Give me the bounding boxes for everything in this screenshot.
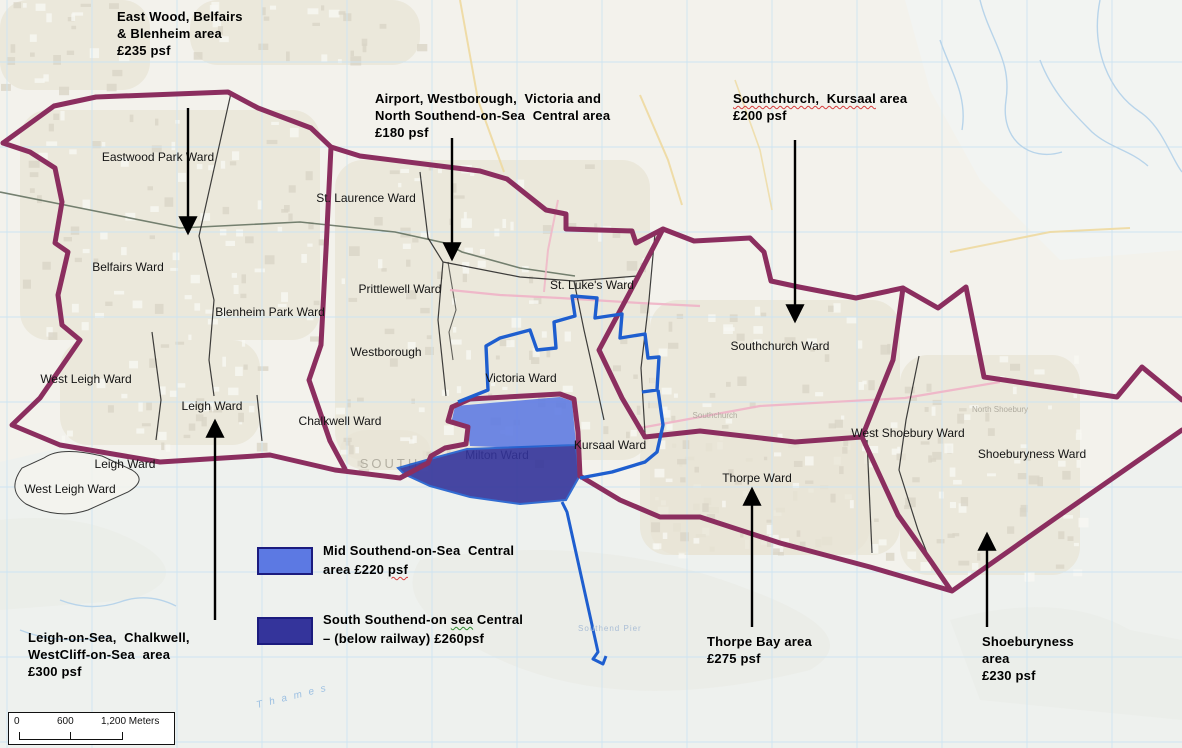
urban-block	[142, 423, 151, 426]
urban-block	[1074, 543, 1079, 546]
urban-block	[1034, 369, 1044, 374]
urban-block	[1025, 573, 1031, 582]
ward-label: Westborough	[350, 345, 421, 359]
urban-block	[301, 254, 307, 263]
urban-block	[281, 292, 288, 302]
urban-block	[53, 114, 59, 120]
urban-block	[805, 481, 813, 484]
urban-block	[355, 447, 359, 453]
urban-block	[496, 356, 500, 360]
ward-label: Southchurch Ward	[731, 339, 830, 353]
ward-label: West Leigh Ward	[24, 482, 115, 496]
urban-block	[290, 128, 299, 138]
urban-block	[543, 225, 552, 234]
urban-block	[264, 17, 270, 21]
urban-block	[308, 8, 319, 14]
urban-block	[222, 357, 226, 367]
urban-block	[563, 386, 573, 392]
urban-block	[109, 3, 119, 9]
urban-block	[129, 361, 138, 369]
urban-block	[444, 425, 454, 435]
urban-block	[453, 327, 456, 333]
urban-block	[454, 195, 465, 198]
urban-block	[835, 420, 843, 428]
urban-block	[1018, 473, 1027, 479]
urban-block	[232, 151, 239, 160]
urban-block	[726, 382, 731, 387]
urban-block	[1076, 430, 1081, 435]
urban-block	[67, 51, 74, 55]
urban-block	[36, 4, 46, 11]
urban-block	[390, 358, 398, 366]
urban-block	[271, 122, 279, 125]
urban-block	[887, 344, 890, 353]
urban-block	[659, 349, 668, 357]
urban-block	[858, 340, 862, 348]
urban-block	[977, 553, 980, 561]
urban-block	[666, 479, 673, 483]
urban-block	[81, 4, 91, 7]
urban-block	[841, 416, 844, 420]
urban-block	[425, 347, 434, 355]
urban-block	[344, 438, 352, 442]
urban-block	[178, 383, 186, 387]
ward-label: Leigh Ward	[95, 457, 156, 471]
urban-block	[944, 444, 953, 454]
urban-block	[173, 253, 180, 261]
urban-block	[466, 350, 471, 359]
urban-block	[774, 452, 781, 456]
urban-block	[349, 298, 358, 302]
urban-block	[939, 492, 944, 499]
urban-block	[722, 501, 726, 508]
urban-block	[886, 553, 895, 561]
urban-block	[200, 213, 210, 221]
urban-block	[183, 218, 187, 225]
urban-block	[842, 447, 847, 454]
urban-block	[175, 120, 179, 124]
urban-block	[357, 398, 364, 403]
urban-block	[874, 519, 879, 523]
urban-block	[950, 468, 956, 477]
urban-block	[202, 417, 207, 427]
urban-block	[461, 218, 472, 228]
urban-block	[194, 303, 200, 311]
urban-block	[374, 217, 383, 226]
urban-block	[351, 51, 355, 57]
urban-block	[235, 367, 243, 376]
urban-block	[136, 428, 144, 433]
urban-block	[170, 391, 177, 397]
urban-block	[510, 222, 513, 231]
urban-block	[338, 59, 342, 63]
urban-block	[378, 259, 382, 268]
ward-label: Kursaal Ward	[574, 438, 646, 452]
urban-block	[286, 52, 290, 62]
urban-block	[265, 255, 275, 264]
urban-block	[155, 119, 158, 126]
urban-block	[669, 322, 673, 332]
urban-block	[794, 461, 803, 467]
urban-block	[933, 400, 942, 405]
urban-block	[165, 197, 174, 206]
urban-block	[959, 408, 967, 411]
urban-block	[11, 44, 16, 53]
urban-block	[1058, 461, 1066, 467]
urban-block	[1062, 471, 1070, 480]
urban-block	[123, 52, 127, 56]
urban-block	[1074, 394, 1078, 398]
urban-block	[71, 26, 76, 29]
urban-block	[451, 340, 462, 345]
urban-block	[677, 314, 683, 319]
ward-label: St. Luke's Ward	[550, 278, 634, 292]
urban-block	[710, 393, 716, 398]
urban-block	[506, 340, 514, 347]
urban-block	[43, 74, 48, 81]
urban-block	[480, 249, 485, 255]
urban-block	[349, 246, 360, 256]
urban-block	[631, 430, 637, 437]
urban-block	[1056, 565, 1064, 569]
urban-block	[185, 295, 192, 299]
urban-block	[64, 237, 72, 241]
ward-label: Chalkwell Ward	[299, 414, 382, 428]
urban-block	[30, 188, 35, 193]
urban-block	[258, 44, 268, 50]
urban-block	[1020, 508, 1027, 517]
urban-block	[23, 3, 27, 8]
urban-block	[312, 23, 320, 26]
urban-block	[82, 322, 89, 330]
urban-block	[679, 553, 685, 558]
urban-block	[400, 228, 410, 238]
urban-block	[512, 318, 522, 328]
urban-block	[232, 273, 237, 278]
urban-area	[190, 0, 420, 65]
urban-block	[350, 56, 361, 65]
urban-block	[121, 394, 127, 399]
urban-block	[542, 331, 547, 337]
place-label: Southchurch	[693, 411, 738, 420]
urban-block	[158, 432, 166, 440]
price-map: Milton WardSOUTHSouthchurchNorth Shoebur…	[0, 0, 1182, 748]
urban-block	[773, 548, 780, 555]
urban-block	[223, 207, 230, 214]
urban-block	[72, 304, 79, 313]
urban-block	[1, 84, 11, 91]
urban-block	[683, 440, 690, 449]
urban-block	[1000, 356, 1009, 362]
urban-block	[48, 332, 57, 340]
urban-block	[694, 538, 700, 544]
urban-block	[238, 413, 244, 422]
urban-block	[244, 365, 248, 370]
ward-label: West Leigh Ward	[40, 372, 131, 386]
ward-label: Blenheim Park Ward	[215, 305, 325, 319]
urban-block	[502, 387, 507, 390]
urban-block	[219, 36, 229, 42]
urban-block	[342, 278, 345, 284]
urban-block	[191, 275, 200, 284]
urban-block	[35, 78, 45, 83]
base-map-svg: Milton WardSOUTHSouthchurchNorth Shoebur…	[0, 0, 1182, 748]
urban-block	[831, 494, 836, 503]
urban-block	[680, 477, 685, 482]
urban-block	[958, 561, 969, 566]
urban-block	[1058, 531, 1064, 539]
urban-block	[23, 280, 31, 289]
urban-block	[662, 388, 672, 395]
ward-label: Leigh Ward	[182, 399, 243, 413]
urban-block	[839, 466, 844, 474]
urban-block	[230, 161, 236, 165]
urban-block	[828, 306, 834, 312]
urban-block	[961, 497, 968, 506]
urban-block	[138, 402, 142, 412]
urban-block	[242, 274, 247, 283]
urban-block	[30, 34, 37, 42]
ward-label: Thorpe Ward	[722, 471, 792, 485]
urban-block	[907, 552, 916, 560]
urban-block	[420, 308, 429, 313]
urban-block	[730, 314, 738, 322]
urban-block	[1010, 364, 1020, 371]
place-label: North Shoebury	[972, 405, 1028, 414]
urban-block	[114, 291, 124, 295]
urban-block	[417, 44, 427, 51]
urban-block	[339, 11, 346, 15]
urban-block	[668, 343, 678, 349]
urban-block	[565, 332, 571, 342]
urban-block	[400, 437, 410, 441]
urban-block	[859, 382, 864, 390]
urban-block	[988, 428, 995, 436]
urban-block	[1068, 536, 1074, 541]
urban-block	[613, 365, 621, 371]
urban-block	[258, 200, 262, 209]
urban-block	[627, 261, 638, 271]
urban-block	[184, 435, 191, 438]
urban-block	[307, 244, 312, 247]
urban-block	[240, 294, 246, 298]
urban-block	[753, 326, 762, 334]
urban-block	[310, 336, 319, 341]
urban-block	[150, 235, 155, 239]
urban-block	[708, 314, 715, 322]
urban-block	[598, 233, 602, 242]
urban-block	[49, 124, 54, 132]
urban-block	[952, 533, 959, 536]
urban-block	[703, 403, 712, 407]
urban-block	[1013, 387, 1017, 395]
urban-block	[46, 13, 52, 22]
urban-block	[218, 26, 223, 35]
urban-block	[1048, 406, 1052, 410]
urban-block	[105, 302, 112, 306]
urban-block	[805, 456, 814, 465]
urban-block	[107, 84, 117, 92]
urban-block	[953, 480, 962, 485]
urban-block	[1076, 433, 1082, 440]
urban-block	[1073, 569, 1082, 576]
ward-label: Eastwood Park Ward	[102, 150, 214, 164]
urban-block	[72, 12, 83, 15]
urban-block	[178, 173, 186, 182]
urban-block	[651, 522, 660, 532]
urban-block	[221, 161, 225, 169]
urban-block	[83, 249, 90, 253]
urban-block	[677, 459, 686, 465]
urban-block	[633, 375, 638, 379]
ward-label: Prittlewell Ward	[359, 282, 442, 296]
urban-block	[674, 394, 678, 398]
urban-block	[671, 416, 675, 421]
urban-block	[680, 532, 689, 541]
urban-block	[75, 258, 82, 262]
urban-block	[400, 169, 409, 173]
urban-block	[133, 301, 143, 309]
urban-block	[194, 52, 203, 60]
urban-block	[905, 387, 915, 394]
urban-block	[547, 350, 551, 357]
urban-block	[1007, 526, 1014, 533]
urban-block	[937, 539, 945, 543]
urban-block	[494, 229, 499, 237]
urban-block	[1029, 476, 1040, 485]
urban-block	[211, 2, 219, 12]
urban-block	[931, 458, 937, 462]
urban-block	[987, 473, 996, 476]
urban-block	[349, 445, 354, 454]
urban-block	[146, 403, 152, 411]
ward-label: Shoeburyness Ward	[978, 447, 1086, 461]
urban-block	[833, 303, 840, 312]
urban-block	[62, 436, 65, 443]
urban-block	[802, 385, 809, 394]
urban-block	[912, 477, 919, 482]
urban-block	[148, 186, 154, 190]
urban-block	[398, 183, 401, 187]
urban-block	[529, 276, 533, 283]
urban-block	[161, 344, 169, 348]
urban-block	[655, 469, 665, 478]
urban-block	[166, 445, 170, 452]
urban-block	[236, 229, 243, 236]
urban-block	[925, 407, 929, 412]
urban-block	[67, 431, 73, 437]
urban-block	[60, 111, 64, 121]
urban-block	[381, 268, 386, 272]
urban-block	[69, 149, 77, 154]
urban-block	[306, 171, 313, 180]
urban-block	[737, 377, 746, 387]
urban-block	[267, 140, 278, 144]
urban-block	[412, 238, 418, 243]
urban-block	[42, 262, 50, 270]
urban-block	[1074, 356, 1079, 364]
urban-block	[761, 313, 766, 317]
urban-block	[30, 53, 35, 57]
ward-label: St. Laurence Ward	[316, 191, 416, 205]
urban-block	[380, 24, 387, 29]
urban-block	[112, 70, 122, 76]
urban-block	[102, 142, 105, 147]
urban-block	[258, 366, 269, 371]
urban-block	[121, 247, 127, 255]
ward-label: West Shoebury Ward	[851, 426, 964, 440]
urban-block	[695, 467, 700, 473]
urban-block	[921, 441, 930, 444]
urban-block	[932, 407, 936, 416]
urban-block	[457, 386, 461, 393]
urban-block	[14, 2, 22, 8]
urban-block	[850, 500, 854, 508]
urban-block	[90, 48, 99, 58]
urban-block	[30, 172, 39, 177]
urban-block	[847, 317, 857, 323]
urban-block	[764, 457, 767, 461]
urban-block	[637, 406, 641, 415]
urban-block	[985, 413, 989, 422]
urban-block	[188, 335, 191, 341]
urban-block	[289, 185, 296, 192]
urban-block	[278, 227, 283, 232]
urban-block	[197, 164, 203, 169]
urban-block	[155, 304, 164, 314]
urban-block	[797, 530, 801, 536]
urban-block	[755, 307, 760, 316]
urban-block	[815, 392, 823, 396]
urban-block	[702, 503, 708, 512]
urban-block	[284, 205, 290, 212]
urban-block	[767, 520, 772, 523]
urban-block	[161, 443, 164, 451]
urban-block	[663, 533, 668, 539]
urban-block	[403, 244, 411, 249]
urban-block	[262, 7, 266, 15]
urban-block	[7, 57, 16, 65]
urban-block	[950, 502, 956, 508]
urban-block	[478, 261, 486, 268]
urban-block	[288, 214, 292, 221]
urban-block	[927, 384, 932, 392]
urban-block	[722, 425, 729, 429]
urban-block	[1077, 460, 1081, 468]
urban-block	[603, 426, 608, 434]
urban-block	[329, 10, 340, 18]
urban-block	[427, 335, 432, 339]
urban-block	[409, 439, 414, 443]
urban-block	[654, 544, 659, 550]
urban-block	[53, 55, 61, 65]
urban-block	[242, 340, 245, 347]
urban-block	[189, 424, 196, 431]
urban-block	[363, 44, 367, 52]
urban-block	[172, 142, 176, 150]
urban-block	[989, 548, 994, 551]
urban-block	[957, 414, 964, 424]
urban-block	[879, 539, 887, 545]
urban-block	[130, 115, 134, 123]
urban-block	[108, 405, 114, 412]
urban-block	[71, 227, 79, 235]
urban-block	[321, 5, 324, 10]
urban-block	[723, 324, 733, 334]
urban-block	[390, 170, 400, 174]
urban-block	[255, 269, 265, 273]
urban-block	[585, 164, 595, 169]
